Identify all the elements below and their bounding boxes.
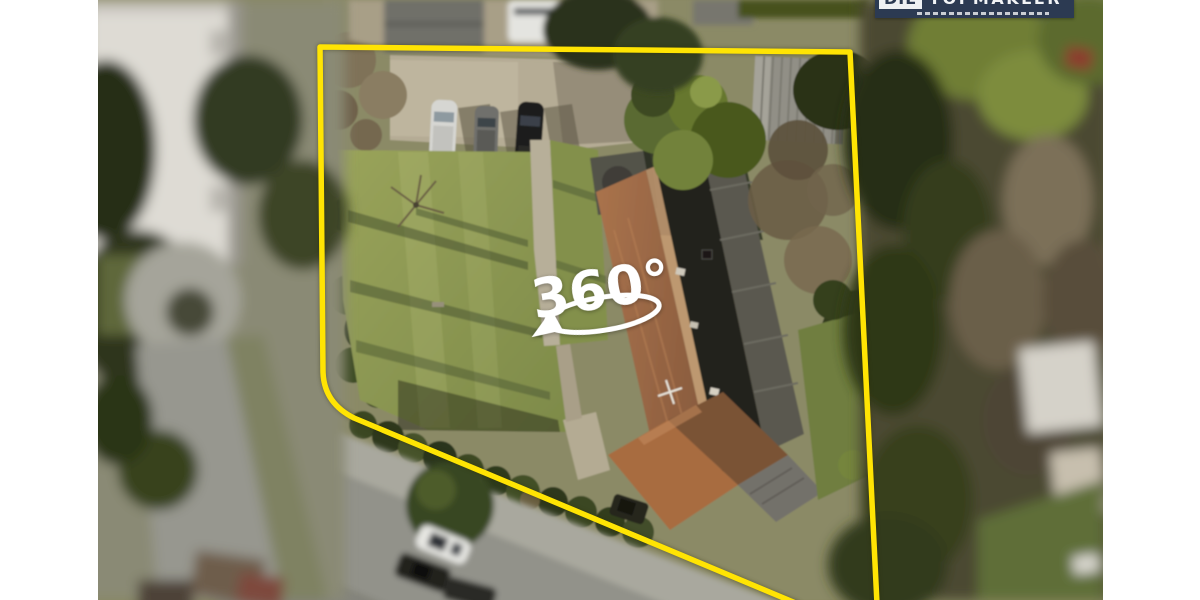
garden-bench bbox=[432, 302, 444, 307]
left-neighborhood bbox=[98, 0, 348, 600]
agency-logo: DIE TOPMAKLER bbox=[875, 0, 1074, 18]
screenshot-page: 360° DIE TOPMAKLER bbox=[0, 0, 1200, 600]
agency-logo-tagline bbox=[917, 12, 1049, 15]
right-neighborhood bbox=[828, 0, 1103, 600]
agency-logo-row: DIE TOPMAKLER bbox=[879, 0, 1062, 11]
aerial-photo: 360° DIE TOPMAKLER bbox=[98, 0, 1103, 600]
aerial-photo-scene: 360° bbox=[98, 0, 1103, 600]
agency-logo-prefix: DIE bbox=[879, 0, 922, 9]
agency-logo-brand: TOPMAKLER bbox=[929, 0, 1062, 8]
